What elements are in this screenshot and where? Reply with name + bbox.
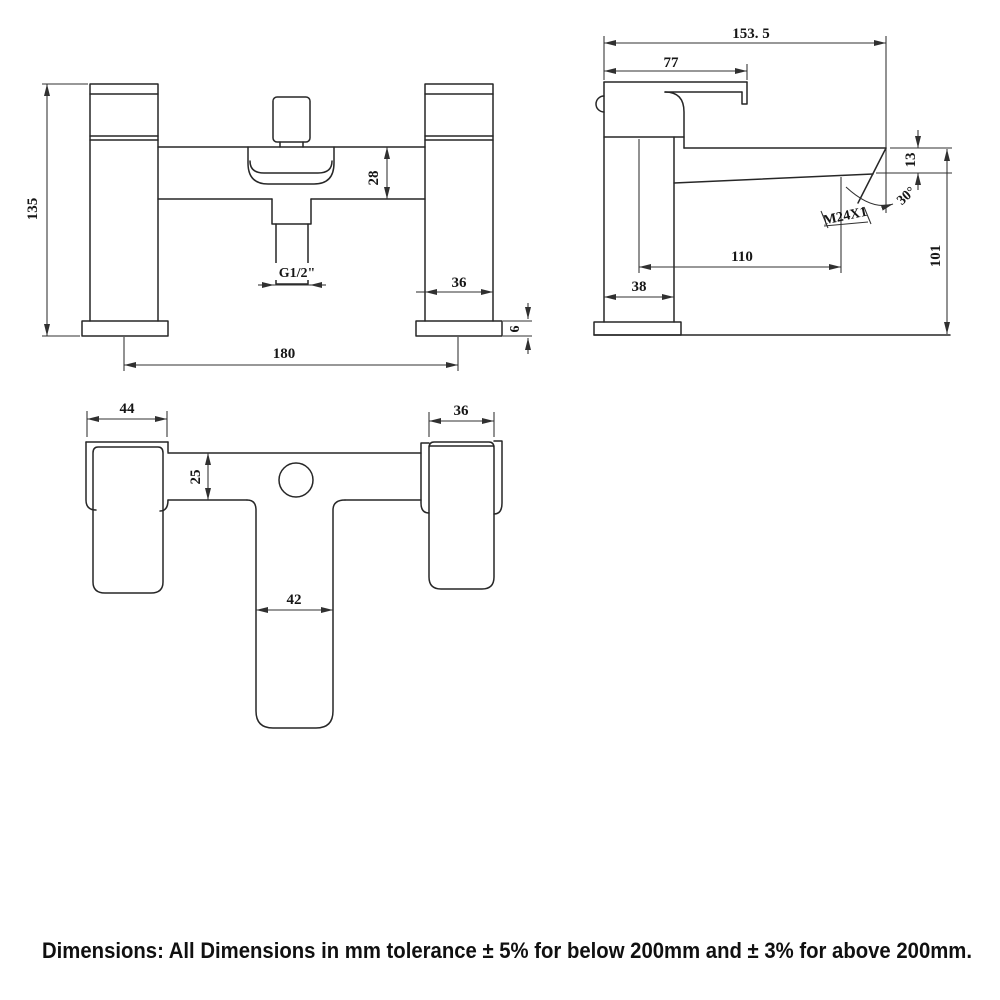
right-block-body bbox=[429, 442, 494, 589]
right-pillar-handle-lines bbox=[425, 94, 493, 140]
spout-underside bbox=[674, 174, 873, 183]
dim-deck-depth: 25 bbox=[188, 470, 204, 485]
diverter-knob bbox=[273, 97, 310, 142]
body-side-button bbox=[596, 96, 604, 112]
front-view-outline bbox=[82, 84, 502, 336]
side-view: 153. 5 77 13 30° M24X1 110 101 38 bbox=[594, 26, 952, 335]
right-block-outer-left bbox=[421, 443, 429, 513]
dim-spout-height: 101 bbox=[928, 245, 944, 268]
side-view-dimension-lines bbox=[604, 36, 952, 334]
dim-spout-reach: 110 bbox=[731, 249, 753, 265]
technical-drawing-page: 135 28 36 6 180 G1/2" bbox=[0, 0, 1000, 1000]
lever-tip bbox=[742, 82, 747, 104]
dim-tip-drop: 13 bbox=[903, 153, 919, 168]
plan-view-outline bbox=[86, 441, 502, 728]
faucet-dimension-drawing: 135 28 36 6 180 G1/2" bbox=[0, 0, 1000, 1000]
spout-front bbox=[248, 147, 334, 184]
side-base-plate bbox=[594, 322, 681, 335]
front-view: 135 28 36 6 180 G1/2" bbox=[25, 84, 532, 371]
dim-handle-block-width: 44 bbox=[120, 401, 136, 417]
dim-body-block-width: 36 bbox=[454, 403, 470, 419]
diverter-knob-plan bbox=[279, 463, 313, 497]
dim-tip-angle: 30° bbox=[894, 184, 919, 208]
right-block-outer-right bbox=[494, 441, 502, 514]
dim-spout-block-height: 28 bbox=[366, 171, 382, 186]
dim-body-depth: 38 bbox=[632, 279, 647, 295]
front-view-dimension-lines bbox=[42, 84, 532, 371]
left-block-outer-left bbox=[86, 442, 96, 510]
height-extension-lines bbox=[42, 84, 88, 336]
dim-pillar-width: 36 bbox=[452, 275, 468, 291]
dim-shower-thread: G1/2" bbox=[279, 266, 316, 281]
dim-base-height: 6 bbox=[508, 326, 523, 333]
left-block-outer-right bbox=[160, 442, 168, 511]
dim-tap-centres: 180 bbox=[273, 346, 296, 362]
shower-outlet-boss bbox=[272, 199, 311, 224]
right-base-plate bbox=[416, 321, 502, 336]
tolerance-caption: Dimensions: All Dimensions in mm toleran… bbox=[42, 938, 972, 963]
left-pillar-handle-lines bbox=[90, 94, 158, 140]
plan-view: 44 36 25 42 bbox=[86, 401, 502, 728]
left-block-body bbox=[93, 447, 163, 593]
spout-tip-face bbox=[858, 148, 886, 203]
left-pillar bbox=[90, 84, 158, 321]
dim-total-depth: 153. 5 bbox=[732, 26, 770, 42]
plan-view-dimension-lines bbox=[87, 411, 494, 610]
dim-stem-width: 42 bbox=[287, 592, 302, 608]
dim-tip-thread: M24X1 bbox=[822, 205, 868, 229]
spout-front-lip bbox=[250, 161, 332, 173]
dim-handle-length: 77 bbox=[664, 55, 680, 71]
dim-height: 135 bbox=[25, 198, 41, 221]
spout-stem-plan bbox=[247, 500, 345, 728]
left-base-plate bbox=[82, 321, 168, 336]
